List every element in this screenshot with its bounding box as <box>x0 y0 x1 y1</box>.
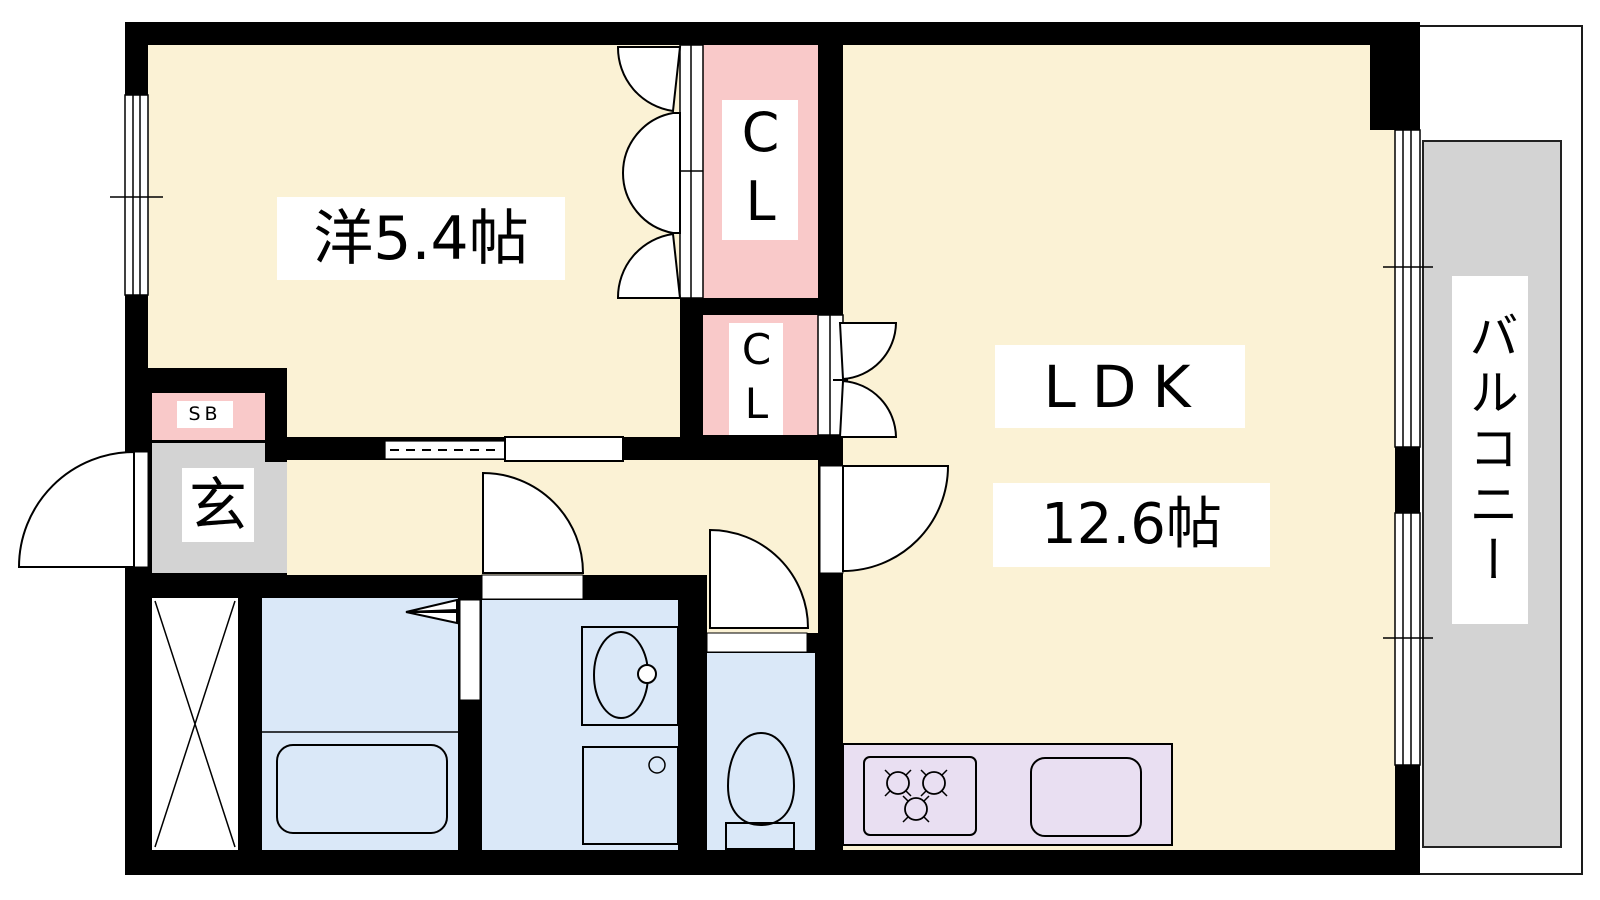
storage-floor <box>152 598 238 850</box>
balcony-label: バルコニー <box>1452 276 1528 624</box>
ne-corner-wall <box>1370 45 1395 130</box>
closet-upper-label: CL <box>722 100 798 240</box>
ldk-floor <box>843 45 1395 850</box>
entrance-label: 玄 <box>182 468 254 542</box>
entrance-wall-notch <box>265 393 287 462</box>
kitchen-counter <box>842 743 1173 846</box>
ldk-area-label: 12.6帖 <box>993 483 1270 567</box>
floor-plan-canvas: 洋5.4帖 CL CL LDK 12.6帖 玄 SB バルコニー <box>0 0 1600 900</box>
hallway-floor <box>287 460 818 575</box>
ldk-label: LDK <box>995 345 1245 428</box>
closet-lower-label: CL <box>729 323 783 435</box>
bathroom-floor <box>262 598 458 850</box>
toilet-alcove-floor <box>707 575 818 633</box>
shoebox-label: SB <box>177 401 233 428</box>
bedroom-label: 洋5.4帖 <box>277 197 565 280</box>
washroom-floor <box>482 600 678 850</box>
toilet-floor <box>707 653 815 850</box>
